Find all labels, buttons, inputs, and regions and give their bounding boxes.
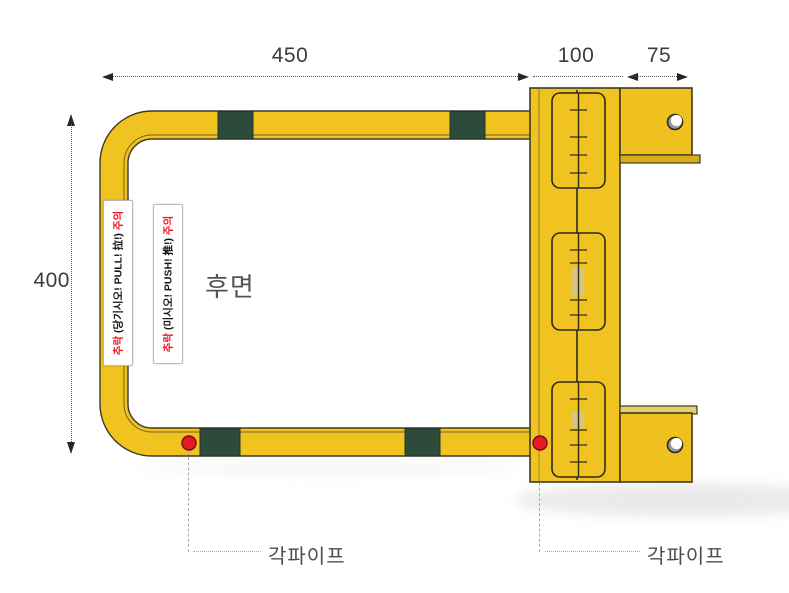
pipe-marker-dot-left [182,436,196,450]
warning-body: (미시오! PUSH! 推!) [163,238,175,330]
arrowhead-icon [518,73,529,81]
warning-sticker-text: 추락 (미시오! PUSH! 推!) 주의 [161,216,176,352]
warning-sticker-text: 추락 (당기시오! PULL! 拉!) 주의 [111,211,126,355]
bolt-hole-highlight [671,115,682,126]
part-label-square-pipe-left: 각파이프 [268,540,346,569]
dim-100-label: 100 [546,44,606,68]
diagram-canvas: 450 100 75 400 추락 (당기시오! PULL! 拉!) 주의 추락… [0,0,789,593]
ground-shadow-right [515,483,789,517]
dim-line-450 [104,76,524,77]
warning-sticker-pull: 추락 (당기시오! PULL! 拉!) 주의 [103,200,133,366]
mounting-bracket-bottom [620,406,697,482]
hinge-top [552,93,605,188]
hinge-middle [552,233,605,330]
leader-line-vertical [539,452,540,552]
arrowhead-icon [102,73,113,81]
mounting-bracket-top [620,88,700,163]
bracket-flange [620,155,700,163]
warning-prefix: 추락 [113,336,125,355]
hinges [552,93,605,477]
warning-sticker-push: 추락 (미시오! PUSH! 推!) 주의 [153,204,183,364]
stripe-band [200,429,240,456]
dim-75-label: 75 [634,44,684,68]
warning-prefix: 추락 [163,333,175,352]
dim-line-400 [71,124,72,444]
dim-line-100 [533,76,623,77]
part-label-square-pipe-right: 각파이프 [647,540,725,569]
leader-line-horizontal [193,551,261,552]
bolt-hole-highlight [671,438,682,449]
warning-suffix: 주의 [163,216,175,235]
stripe-band [218,112,253,139]
hinge-bottom [552,382,605,477]
leader-line-horizontal [545,551,640,552]
view-label-rear: 후면 [205,267,255,304]
arrowhead-icon [677,73,688,81]
warning-suffix: 주의 [113,211,125,230]
warning-body: (당기시오! PULL! 拉!) [113,233,125,333]
ground-shadow-left [140,460,520,476]
stripe-band [450,112,485,139]
leader-line-vertical [188,452,189,552]
stripe-band [405,429,440,456]
dim-450-label: 450 [260,44,320,68]
dim-400-label: 400 [26,269,70,293]
pipe-marker-dot-right [533,436,547,450]
arrowhead-icon [67,442,75,454]
dim-line-75 [632,76,679,77]
